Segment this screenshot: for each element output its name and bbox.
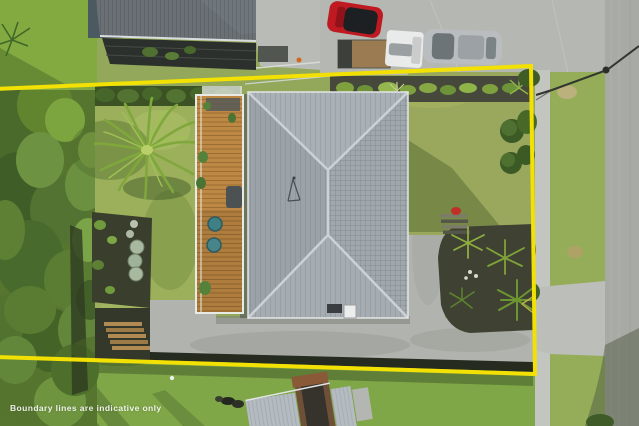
roof-vent — [327, 304, 342, 313]
aerial-photo-canvas — [0, 0, 639, 426]
parked-car-silver — [422, 29, 502, 66]
left-vegetation — [0, 70, 106, 426]
driveway-apron — [536, 281, 605, 356]
power-pole — [603, 67, 610, 74]
orange-object — [297, 58, 302, 63]
main-house — [240, 92, 408, 318]
wooden-deck — [196, 86, 243, 313]
aerial-photo: Boundary lines are indicative only — [0, 0, 639, 426]
bean-bag — [207, 238, 221, 252]
deck-furniture — [226, 186, 242, 208]
chimney — [344, 305, 356, 318]
top-road-parking — [320, 0, 610, 75]
footpath — [535, 70, 550, 426]
tropical-garden — [438, 207, 534, 333]
lawn-object-white — [170, 376, 174, 380]
bean-bag — [208, 217, 222, 231]
pergola — [202, 86, 242, 94]
deck-mat — [206, 98, 240, 111]
parked-car-white — [385, 30, 424, 68]
potted-plant — [198, 151, 208, 163]
watermark-text: Boundary lines are indicative only — [10, 403, 162, 413]
red-flowers — [451, 207, 461, 215]
